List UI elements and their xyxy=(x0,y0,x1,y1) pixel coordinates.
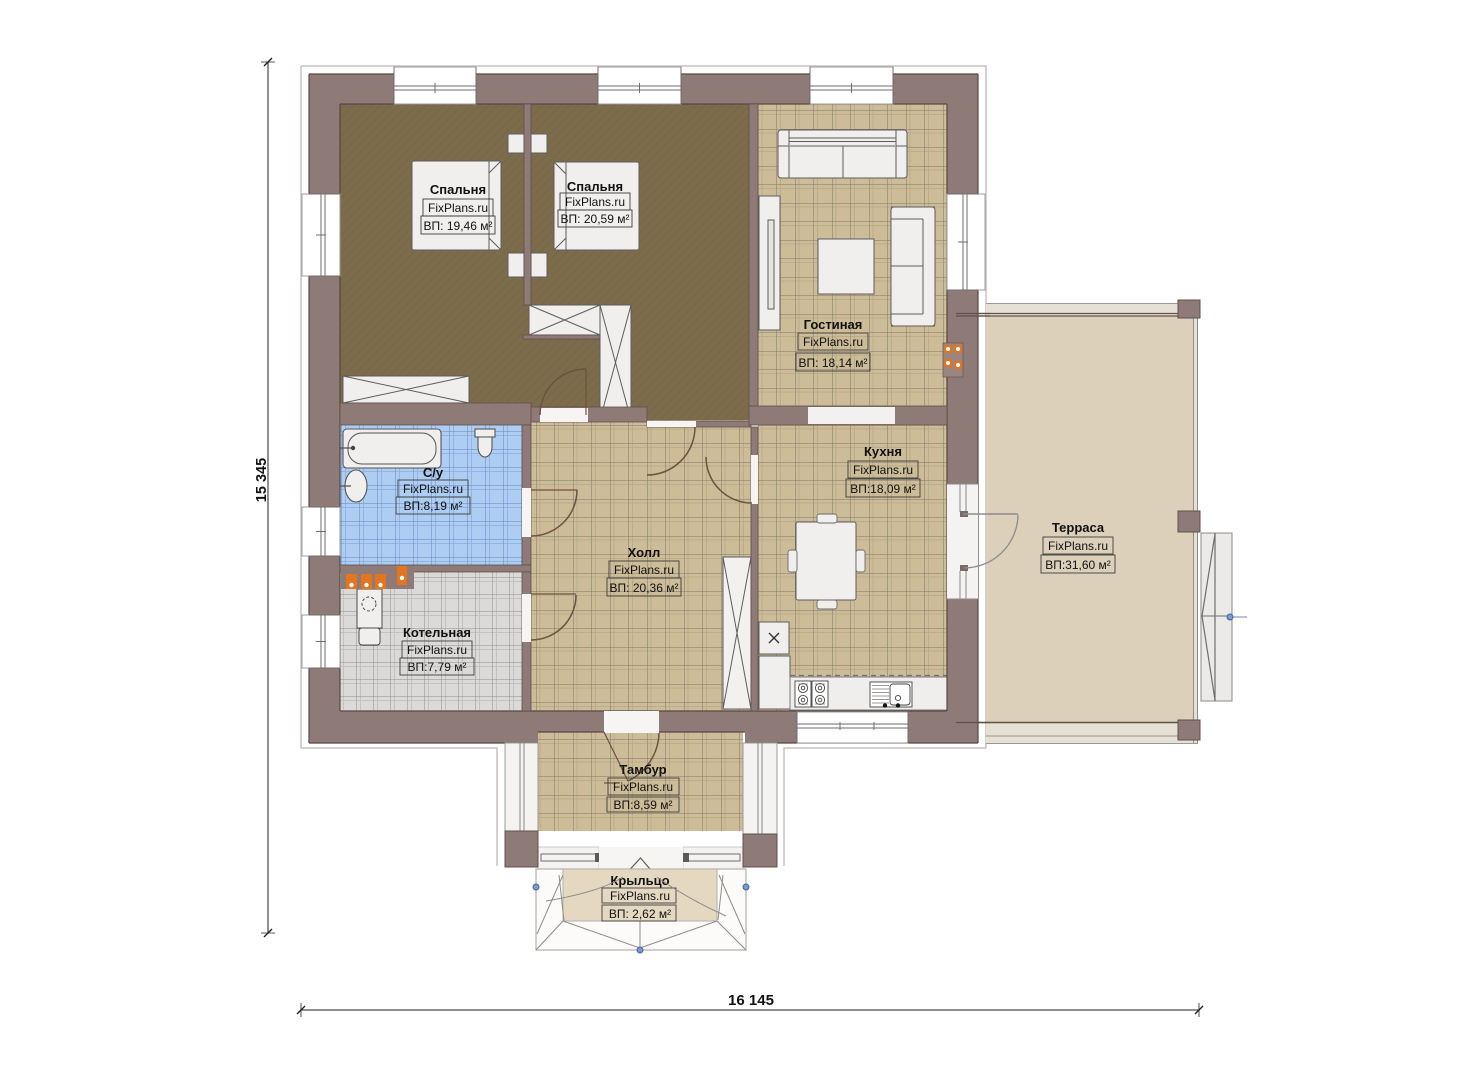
svg-text:С/у: С/у xyxy=(423,465,444,480)
svg-text:FixPlans.ru: FixPlans.ru xyxy=(853,463,913,477)
svg-text:FixPlans.ru: FixPlans.ru xyxy=(403,482,463,496)
svg-text:ВП: 19,46 м²: ВП: 19,46 м² xyxy=(424,219,493,233)
svg-text:Кухня: Кухня xyxy=(864,444,902,459)
svg-text:ВП: 20,36 м²: ВП: 20,36 м² xyxy=(610,581,679,595)
svg-text:Тамбур: Тамбур xyxy=(619,762,666,777)
svg-text:FixPlans.ru: FixPlans.ru xyxy=(565,195,625,209)
svg-text:ВП:8,59 м²: ВП:8,59 м² xyxy=(614,798,673,812)
svg-text:Терраса: Терраса xyxy=(1052,520,1105,535)
svg-text:ВП:31,60 м²: ВП:31,60 м² xyxy=(1045,558,1111,572)
svg-text:ВП:18,09 м²: ВП:18,09 м² xyxy=(850,482,916,496)
svg-text:FixPlans.ru: FixPlans.ru xyxy=(428,201,488,215)
svg-text:15 345: 15 345 xyxy=(254,458,270,502)
svg-text:FixPlans.ru: FixPlans.ru xyxy=(1048,539,1108,553)
svg-text:Котельная: Котельная xyxy=(403,625,471,640)
svg-text:ВП:7,79 м²: ВП:7,79 м² xyxy=(408,660,467,674)
svg-text:Гостиная: Гостиная xyxy=(804,317,863,332)
svg-text:ВП: 18,14 м²: ВП: 18,14 м² xyxy=(799,356,868,370)
svg-text:16 145: 16 145 xyxy=(728,992,774,1009)
svg-text:Спальня: Спальня xyxy=(430,182,486,197)
svg-text:ВП: 2,62 м²: ВП: 2,62 м² xyxy=(609,907,671,921)
svg-text:FixPlans.ru: FixPlans.ru xyxy=(803,335,863,349)
svg-text:ВП: 20,59 м²: ВП: 20,59 м² xyxy=(561,212,630,226)
svg-text:FixPlans.ru: FixPlans.ru xyxy=(613,780,673,794)
svg-text:FixPlans.ru: FixPlans.ru xyxy=(407,643,467,657)
svg-text:Спальня: Спальня xyxy=(567,179,623,194)
svg-text:Крыльцо: Крыльцо xyxy=(610,873,669,888)
svg-text:Холл: Холл xyxy=(628,545,661,560)
svg-text:FixPlans.ru: FixPlans.ru xyxy=(610,889,670,903)
svg-text:FixPlans.ru: FixPlans.ru xyxy=(614,563,674,577)
svg-text:ВП:8,19 м²: ВП:8,19 м² xyxy=(404,499,463,513)
